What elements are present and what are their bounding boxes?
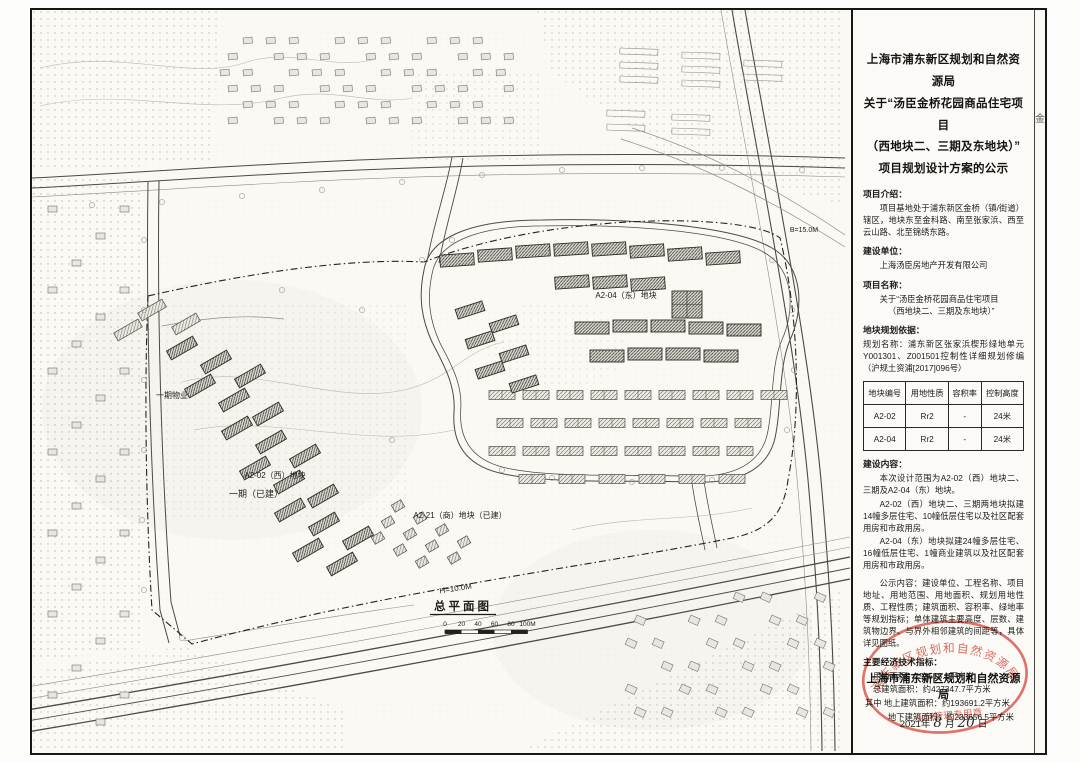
house	[343, 85, 353, 92]
facility-building	[672, 291, 702, 318]
house	[404, 69, 414, 76]
building	[555, 275, 590, 289]
house	[251, 85, 261, 92]
building	[689, 322, 723, 334]
scale-tick: 20	[458, 621, 466, 628]
site-plan-map: 一期物业A2-02（西）地块一期（已建）A2-21（商）地块（已建）A2-04（…	[32, 10, 851, 753]
house	[320, 117, 330, 124]
table-header: 用地性质	[906, 382, 948, 405]
house	[243, 101, 253, 108]
house	[72, 503, 81, 509]
house	[96, 395, 105, 401]
table-cell: 24米	[981, 405, 1023, 428]
map-label: 一期物业	[156, 390, 188, 400]
scale-tick: 80	[507, 621, 515, 628]
map-label: A2-21（商）地块（已建）	[413, 510, 506, 520]
content-paragraph: A2-02（西）地块二、三期两地块拟建14幢多层住宅、10幢低层住宅以及社区配套…	[863, 498, 1024, 534]
house	[358, 37, 368, 44]
house	[473, 69, 483, 76]
house	[450, 101, 460, 108]
house	[48, 611, 57, 617]
house	[289, 101, 299, 108]
house	[266, 37, 276, 44]
house	[120, 368, 129, 374]
section-label: 项目介绍：	[863, 187, 1024, 200]
table-header: 控制高度	[981, 382, 1023, 405]
building	[440, 253, 475, 267]
map-label: A2-04（东）地块	[595, 290, 656, 300]
house	[96, 638, 105, 644]
house	[381, 37, 391, 44]
house	[412, 53, 422, 60]
house	[335, 37, 345, 44]
map-label: B=15.0M	[790, 227, 818, 234]
house	[481, 53, 491, 60]
house	[48, 530, 57, 536]
house	[458, 85, 468, 92]
building	[592, 242, 627, 256]
house	[427, 101, 437, 108]
table-cell: Rr2	[906, 428, 948, 451]
house	[48, 206, 57, 212]
house	[120, 287, 129, 293]
building	[590, 350, 624, 362]
house	[228, 117, 238, 124]
date-day-handwritten: 20	[955, 715, 978, 731]
intro-text: 项目基地处于浦东新区金桥（镇/街道）辖区，地块东至金科路、南至张家浜、西至云山路…	[863, 202, 1024, 238]
site-plan-svg: 一期物业A2-02（西）地块一期（已建）A2-21（商）地块（已建）A2-04（…	[32, 10, 851, 753]
house	[72, 422, 81, 428]
building	[630, 244, 665, 258]
house	[473, 37, 483, 44]
section-label: 建设单位：	[863, 244, 1024, 257]
plan-sheet: 一期物业A2-02（西）地块一期（已建）A2-21（商）地块（已建）A2-04（…	[30, 8, 1047, 755]
section-label: 建设内容：	[863, 457, 1024, 470]
building	[651, 320, 685, 332]
notice-panel: 上海市浦东新区规划和自然资源局 关于“汤臣金桥花园商品住宅项目 （西地块二、三期…	[851, 10, 1035, 753]
house	[72, 260, 81, 266]
house	[504, 53, 514, 60]
title-line: 项目规划设计方案的公示	[863, 159, 1024, 181]
table-header: 容积率	[948, 382, 981, 405]
scale-tick: 0	[443, 621, 447, 628]
notice-date: 2021年8月20日	[863, 715, 1024, 731]
project-name-line: 关于“汤臣金桥花园商品住宅项目	[863, 293, 1024, 305]
plan-title: 总平面图	[434, 599, 492, 613]
house	[458, 53, 468, 60]
content-paragraph: 本次设计范围为A2-02（西）地块二、三期及A2-04（东）地块。	[863, 472, 1024, 496]
house	[72, 665, 81, 671]
house	[120, 206, 129, 212]
house	[96, 233, 105, 239]
house	[274, 53, 284, 60]
house	[120, 530, 129, 536]
house	[504, 117, 514, 124]
section-builder: 建设单位： 上海汤臣房地产开发有限公司	[863, 244, 1024, 271]
house	[48, 368, 57, 374]
table-cell: 24米	[981, 428, 1023, 451]
house	[266, 101, 276, 108]
house	[320, 53, 330, 60]
house	[427, 37, 437, 44]
building	[631, 277, 666, 291]
house	[450, 37, 460, 44]
building	[668, 247, 703, 261]
house	[504, 85, 514, 92]
notice-title: 上海市浦东新区规划和自然资源局 关于“汤臣金桥花园商品住宅项目 （西地块二、三期…	[863, 50, 1024, 181]
building	[554, 242, 589, 256]
house	[366, 117, 376, 124]
house	[228, 53, 238, 60]
house	[297, 117, 307, 124]
house	[312, 69, 322, 76]
title-line: 关于“汤臣金桥花园商品住宅项目	[863, 94, 1024, 138]
house	[120, 692, 129, 698]
building	[575, 322, 609, 334]
building	[727, 324, 761, 336]
house	[72, 584, 81, 590]
table-cell: -	[948, 428, 981, 451]
plot-spec-table: 地块编号 用地性质 容积率 控制高度 A2-02 Rr2 - 24米 A2-04…	[863, 381, 1024, 451]
map-label: 一期（已建）	[229, 488, 283, 499]
table-row: A2-04 Rr2 - 24米	[864, 428, 1024, 451]
building	[516, 244, 551, 258]
table-cell: Rr2	[906, 405, 948, 428]
house	[389, 117, 399, 124]
panel-footer: 上海市浦东新区规划和自然资源局 2021年8月20日	[863, 670, 1024, 731]
house	[48, 692, 57, 698]
house	[412, 117, 422, 124]
margin-strip: 金	[1035, 10, 1045, 753]
house	[243, 69, 253, 76]
house	[320, 85, 330, 92]
house	[366, 85, 376, 92]
building	[478, 248, 513, 262]
house	[289, 37, 299, 44]
house	[381, 69, 391, 76]
house	[274, 117, 284, 124]
table-cell: A2-02	[864, 405, 906, 428]
building	[613, 320, 647, 332]
house	[96, 557, 105, 563]
section-project: 项目名称： 关于“汤臣金桥花园商品住宅项目 （西地块二、三期及东地块）”	[863, 278, 1024, 318]
house	[481, 117, 491, 124]
house	[381, 101, 391, 108]
house	[335, 101, 345, 108]
table-cell: A2-04	[864, 428, 906, 451]
table-row: A2-02 Rr2 - 24米	[864, 405, 1024, 428]
building	[593, 275, 628, 289]
building	[628, 348, 662, 360]
basis-text: 规划名称：浦东新区张家浜楔形绿地单元Y001301、Z001501控制性详细规划…	[863, 338, 1024, 374]
building	[704, 350, 738, 362]
scale-tick: 100M	[519, 621, 535, 628]
scale-tick: 60	[491, 621, 499, 628]
house	[473, 101, 483, 108]
building	[666, 348, 700, 360]
house	[427, 69, 437, 76]
map-label: A2-02（西）地块	[244, 470, 305, 480]
house	[274, 85, 284, 92]
date-day-unit: 日	[978, 719, 988, 730]
house	[96, 314, 105, 320]
table-cell: -	[948, 405, 981, 428]
house	[297, 53, 307, 60]
margin-note: 金	[1035, 110, 1045, 125]
house	[96, 476, 105, 482]
house	[48, 287, 57, 293]
field-textures	[32, 10, 851, 753]
section-label: 地块规划依据：	[863, 323, 1024, 336]
date-month-unit: 月	[945, 719, 955, 730]
house	[289, 69, 299, 76]
house	[458, 117, 468, 124]
section-content: 建设内容： 本次设计范围为A2-02（西）地块二、三期及A2-04（东）地块。 …	[863, 457, 1024, 570]
house	[48, 449, 57, 455]
scale-tick: 40	[474, 621, 482, 628]
project-name-line: （西地块二、三期及东地块）”	[863, 305, 1024, 317]
content-paragraph: A2-04（东）地块拟建24幢多层住宅、16幢低层住宅、1幢商业建筑以及社区配套…	[863, 535, 1024, 571]
house	[228, 85, 238, 92]
house	[220, 69, 230, 76]
house	[389, 53, 399, 60]
builder-name: 上海汤臣房地产开发有限公司	[863, 259, 1024, 271]
house	[243, 37, 253, 44]
house	[496, 69, 506, 76]
table-header: 地块编号	[864, 382, 906, 405]
house	[435, 85, 445, 92]
house	[335, 69, 345, 76]
house	[96, 719, 105, 725]
section-basis: 地块规划依据： 规划名称：浦东新区张家浜楔形绿地单元Y001301、Z00150…	[863, 323, 1024, 451]
date-year: 2021年	[900, 719, 931, 730]
house	[72, 341, 81, 347]
date-month-handwritten: 8	[930, 715, 945, 731]
house	[120, 449, 129, 455]
title-line: （西地块二、三期及东地块）”	[863, 137, 1024, 159]
house	[412, 85, 422, 92]
section-label: 项目名称：	[863, 278, 1024, 291]
title-line: 上海市浦东新区规划和自然资源局	[863, 50, 1024, 94]
house	[120, 611, 129, 617]
house	[358, 101, 368, 108]
plan-title-block: 总平面图	[430, 599, 496, 615]
building	[706, 251, 741, 265]
agency-name: 上海市浦东新区规划和自然资源局	[863, 670, 1024, 702]
house	[366, 53, 376, 60]
section-intro: 项目介绍： 项目基地处于浦东新区金桥（镇/街道）辖区，地块东至金科路、南至张家浜…	[863, 187, 1024, 238]
